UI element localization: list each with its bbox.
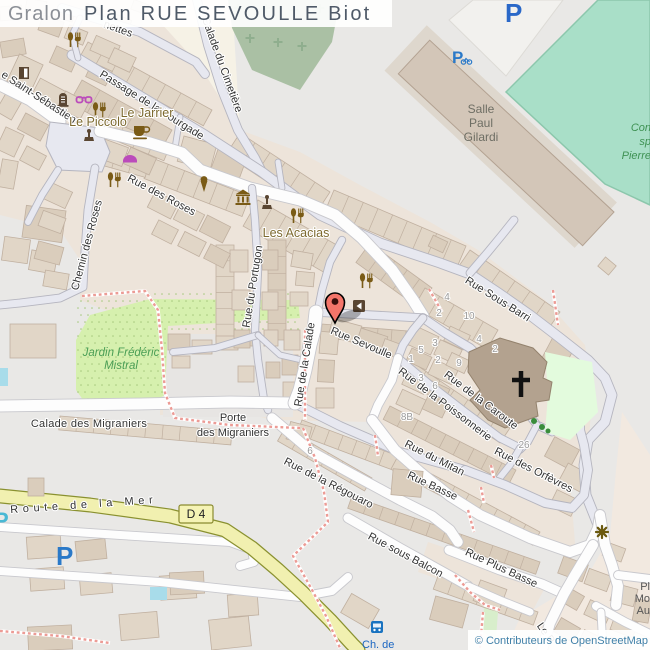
- svg-text:6: 6: [432, 381, 438, 392]
- svg-text:5: 5: [418, 345, 424, 356]
- svg-text:P: P: [56, 541, 73, 571]
- svg-text:3: 3: [418, 373, 424, 384]
- svg-text:6: 6: [307, 446, 313, 457]
- svg-text:Con: Con: [631, 122, 650, 134]
- svg-text:sp: sp: [639, 136, 650, 148]
- svg-text:Jardin Frédéric: Jardin Frédéric: [82, 347, 160, 359]
- svg-text:Gralon: Gralon: [8, 3, 74, 25]
- svg-text:Au: Au: [637, 605, 650, 617]
- svg-text:2: 2: [435, 355, 441, 366]
- svg-text:4: 4: [444, 292, 450, 303]
- svg-text:Mistral: Mistral: [104, 360, 138, 372]
- svg-text:Le Piccolo: Le Piccolo: [69, 115, 127, 129]
- svg-text:2: 2: [436, 308, 442, 319]
- svg-text:Mo: Mo: [635, 593, 650, 605]
- svg-text:des Migraniers: des Migraniers: [197, 427, 270, 439]
- svg-text:P: P: [505, 0, 522, 28]
- svg-text:4: 4: [476, 334, 482, 345]
- svg-text:Les Acacias: Les Acacias: [263, 226, 330, 240]
- svg-text:2: 2: [492, 344, 498, 355]
- svg-text:26: 26: [518, 440, 530, 451]
- svg-text:P: P: [0, 508, 9, 533]
- svg-text:1: 1: [408, 354, 414, 365]
- svg-text:Gilardi: Gilardi: [464, 130, 499, 144]
- svg-text:Paul: Paul: [469, 116, 493, 130]
- svg-text:D 4: D 4: [187, 507, 206, 521]
- svg-text:Salle: Salle: [468, 102, 495, 116]
- svg-text:9: 9: [456, 358, 462, 369]
- svg-text:Ch. de: Ch. de: [362, 639, 394, 650]
- svg-text:Pl: Pl: [640, 581, 650, 593]
- svg-text:© Contributeurs de OpenStreetM: © Contributeurs de OpenStreetMap: [475, 635, 648, 647]
- svg-text:8B: 8B: [401, 412, 414, 423]
- svg-text:Plan RUE SEVOULLE Biot: Plan RUE SEVOULLE Biot: [84, 3, 371, 25]
- svg-text:Pierre: Pierre: [622, 150, 650, 162]
- svg-text:Le Jarrier: Le Jarrier: [121, 106, 174, 120]
- svg-text:Calade des Migraniers: Calade des Migraniers: [31, 418, 148, 430]
- svg-text:P: P: [452, 48, 463, 67]
- svg-text:Porte: Porte: [220, 412, 246, 424]
- svg-text:10: 10: [463, 311, 475, 322]
- svg-text:3: 3: [432, 338, 438, 349]
